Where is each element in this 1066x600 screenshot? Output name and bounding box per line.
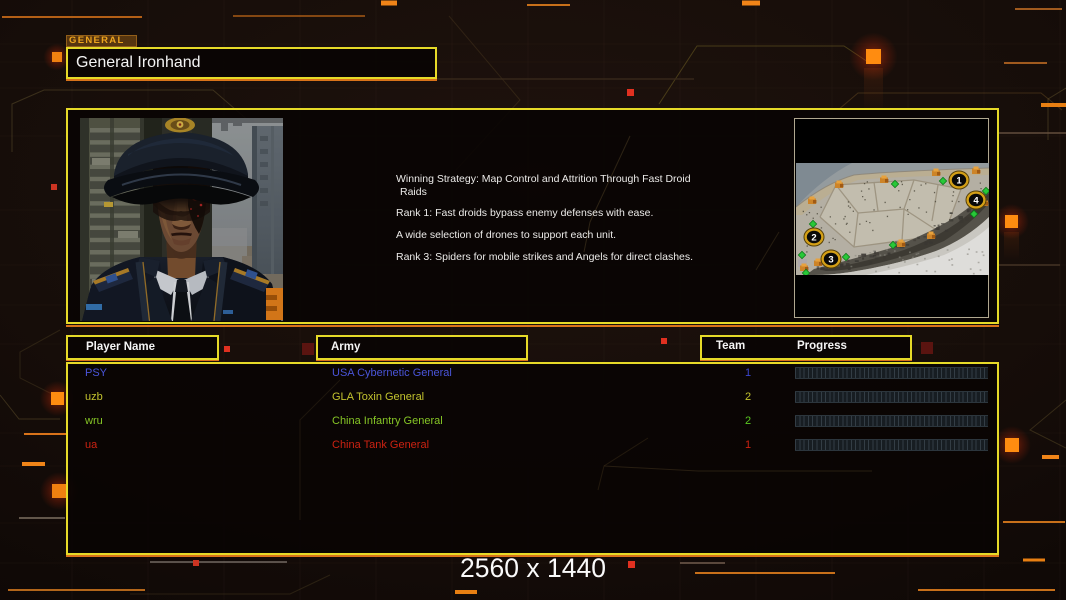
svg-text:2: 2 (811, 232, 816, 243)
svg-text:1: 1 (956, 175, 962, 186)
svg-text:3: 3 (828, 254, 833, 265)
svg-text:4: 4 (973, 195, 979, 206)
